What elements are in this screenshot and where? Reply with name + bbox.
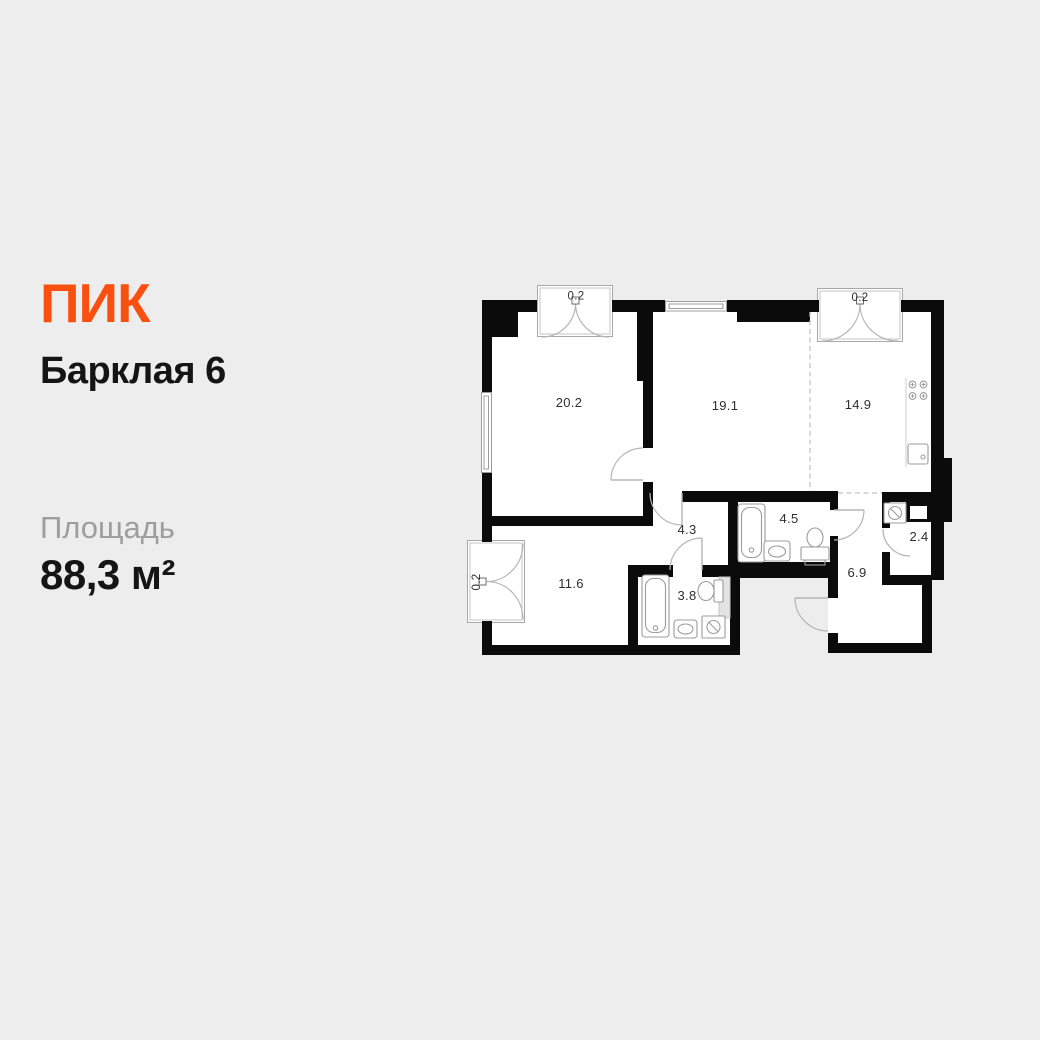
area-value: 88,3 м² xyxy=(40,552,175,598)
kitchen-sink-icon xyxy=(908,444,928,464)
bathtub-icon xyxy=(642,575,669,637)
room-label-living: 20.2 xyxy=(556,395,583,410)
room-label-bedroom-2: 11.6 xyxy=(558,576,584,591)
room-label-wardrobe: 2.4 xyxy=(910,529,929,544)
room-label-hallway: 6.9 xyxy=(848,565,867,580)
room-label-corridor: 4.3 xyxy=(678,522,697,537)
washing-machine-icon xyxy=(884,503,906,523)
entrance-door-swing-icon xyxy=(795,598,828,631)
floor-plan: 20.2 19.1 14.9 4.3 4.5 2.4 6.9 11.6 3.8 … xyxy=(460,280,960,670)
balcony-label-left: 0.2 xyxy=(471,574,483,591)
bathtub-icon xyxy=(738,504,765,562)
balcony-label-top-right: 0.2 xyxy=(852,292,869,304)
room-label-kitchen: 14.9 xyxy=(845,397,872,412)
area-label: Площадь xyxy=(40,511,175,545)
balcony-label-top-left: 0.2 xyxy=(568,291,585,303)
sink-icon xyxy=(764,541,790,561)
room-label-bathroom-2: 3.8 xyxy=(678,588,697,603)
room-label-bathroom: 4.5 xyxy=(780,511,799,526)
room-label-bedroom: 19.1 xyxy=(712,398,739,413)
sink-icon xyxy=(674,620,697,638)
project-title: Барклая 6 xyxy=(40,351,226,393)
washing-machine-icon xyxy=(702,616,725,638)
wardrobe-fixtures xyxy=(884,503,906,523)
shaft-niche xyxy=(910,506,927,519)
toilet-icon xyxy=(698,580,723,602)
pik-logo: ПИК xyxy=(40,276,150,331)
